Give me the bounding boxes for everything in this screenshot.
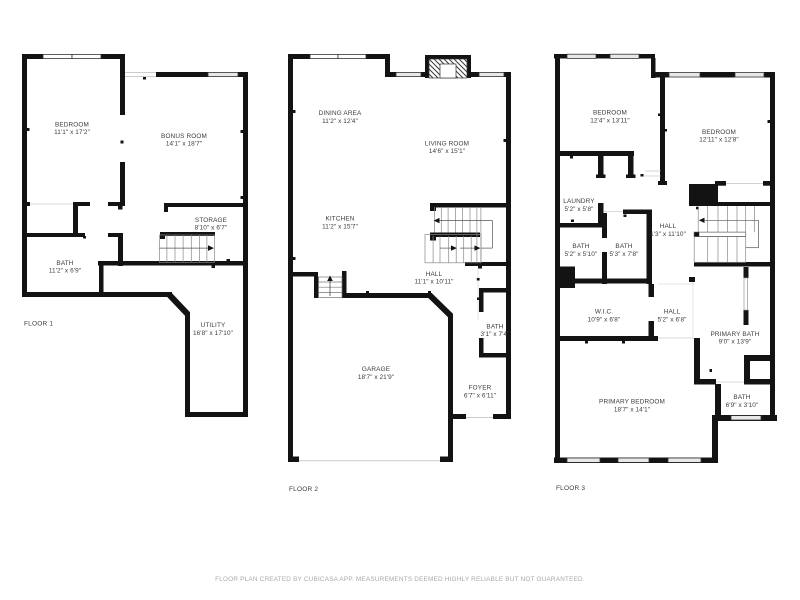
svg-text:18'7" x 14'1": 18'7" x 14'1" — [614, 406, 650, 413]
svg-text:11'2" x 6'9": 11'2" x 6'9" — [49, 268, 81, 275]
svg-text:11'1" x 10'11": 11'1" x 10'11" — [414, 279, 453, 286]
svg-text:LAUNDRY: LAUNDRY — [563, 198, 595, 205]
svg-text:6'9" x 3'10": 6'9" x 3'10" — [726, 402, 759, 409]
svg-text:PRIMARY BATH: PRIMARY BATH — [710, 331, 759, 338]
svg-text:12'4" x 13'11": 12'4" x 13'11" — [590, 117, 630, 124]
svg-text:UTILITY: UTILITY — [201, 322, 226, 329]
svg-text:5'2" x 6'8": 5'2" x 6'8" — [657, 317, 686, 324]
svg-text:STORAGE: STORAGE — [195, 217, 227, 224]
svg-text:PRIMARY BEDROOM: PRIMARY BEDROOM — [599, 399, 665, 406]
svg-text:BATH: BATH — [486, 323, 503, 330]
svg-text:BATH: BATH — [56, 260, 73, 267]
svg-text:18'7" x 21'9": 18'7" x 21'9" — [358, 374, 394, 381]
svg-text:DINING AREA: DINING AREA — [319, 110, 362, 117]
svg-text:16'8" x 17'10": 16'8" x 17'10" — [193, 330, 233, 337]
svg-text:12'11" x 12'8": 12'11" x 12'8" — [699, 137, 739, 144]
svg-text:FOYER: FOYER — [469, 385, 492, 392]
svg-text:3'1" x 7'4": 3'1" x 7'4" — [480, 331, 509, 338]
svg-text:FLOOR 2: FLOOR 2 — [289, 486, 318, 493]
svg-text:6'7" x 6'11": 6'7" x 6'11" — [464, 393, 496, 400]
svg-text:10'9" x 6'8": 10'9" x 6'8" — [588, 317, 621, 324]
svg-text:5'3" x 7'8": 5'3" x 7'8" — [609, 251, 638, 258]
svg-text:1'3" x 11'10": 1'3" x 11'10" — [650, 231, 686, 238]
svg-text:11'1" x 17'2": 11'1" x 17'2" — [54, 129, 90, 136]
svg-text:FLOOR 3: FLOOR 3 — [556, 485, 585, 492]
svg-text:5'2" x 5'10": 5'2" x 5'10" — [565, 251, 598, 258]
svg-text:BATH: BATH — [733, 394, 750, 401]
svg-text:BATH: BATH — [615, 243, 632, 250]
svg-text:14'6" x 15'1": 14'6" x 15'1" — [429, 148, 465, 155]
svg-text:KITCHEN: KITCHEN — [325, 216, 354, 223]
svg-text:BEDROOM: BEDROOM — [593, 110, 627, 117]
svg-text:FLOOR 1: FLOOR 1 — [24, 320, 53, 327]
svg-text:FLOOR PLAN CREATED BY CUBICASA: FLOOR PLAN CREATED BY CUBICASA APP. MEAS… — [215, 576, 585, 583]
svg-text:11'2" x 15'7": 11'2" x 15'7" — [322, 223, 358, 230]
svg-text:BONUS ROOM: BONUS ROOM — [161, 133, 207, 140]
svg-text:HALL: HALL — [660, 223, 677, 230]
svg-text:14'1" x 18'7": 14'1" x 18'7" — [166, 141, 202, 148]
svg-text:BEDROOM: BEDROOM — [55, 121, 89, 128]
svg-text:BEDROOM: BEDROOM — [702, 129, 736, 136]
svg-text:W.I.C.: W.I.C. — [595, 309, 613, 316]
svg-text:HALL: HALL — [426, 271, 443, 278]
svg-text:9'0" x 13'9": 9'0" x 13'9" — [719, 339, 752, 346]
svg-text:GARAGE: GARAGE — [362, 366, 390, 373]
svg-text:BATH: BATH — [572, 243, 589, 250]
svg-text:11'2" x 12'4": 11'2" x 12'4" — [322, 118, 358, 125]
svg-text:8'10" x 6'7": 8'10" x 6'7" — [195, 225, 228, 232]
svg-text:5'2" x 5'8": 5'2" x 5'8" — [564, 206, 593, 213]
svg-text:HALL: HALL — [664, 309, 681, 316]
svg-text:LIVING ROOM: LIVING ROOM — [425, 140, 469, 147]
